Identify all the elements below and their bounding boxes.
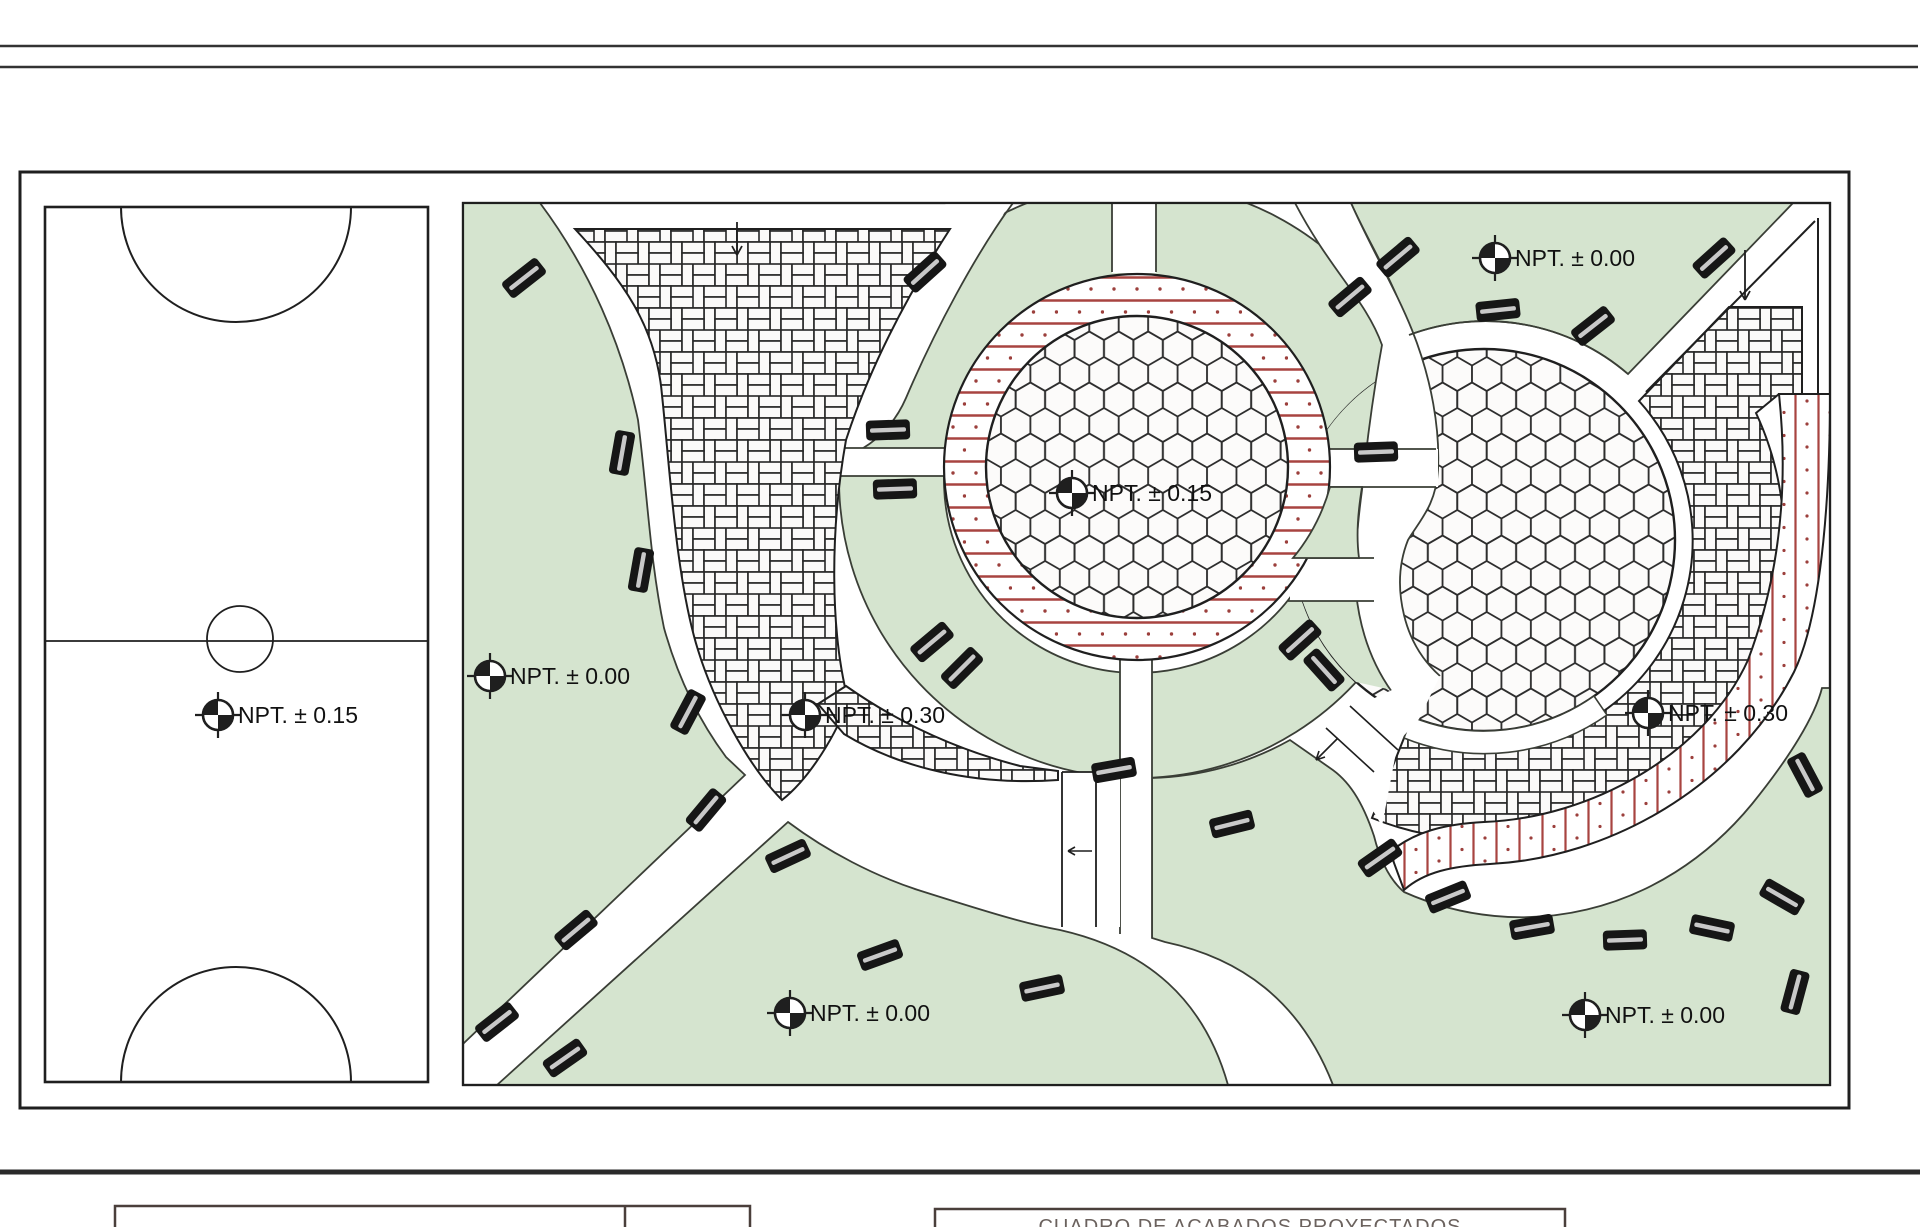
svg-text:NPT. ± 0.15: NPT. ± 0.15 — [1092, 480, 1212, 506]
svg-text:NPT. ± 0.30: NPT. ± 0.30 — [1668, 700, 1788, 726]
svg-text:CUADRO DE ACABADOS PROYECTADOS: CUADRO DE ACABADOS PROYECTADOS — [1038, 1216, 1461, 1227]
svg-text:NPT. ± 0.30: NPT. ± 0.30 — [825, 702, 945, 728]
svg-text:NPT. ± 0.00: NPT. ± 0.00 — [1515, 245, 1635, 271]
svg-text:NPT. ± 0.15: NPT. ± 0.15 — [238, 702, 358, 728]
svg-text:NPT. ± 0.00: NPT. ± 0.00 — [810, 1000, 930, 1026]
svg-text:NPT. ± 0.00: NPT. ± 0.00 — [510, 663, 630, 689]
svg-text:NPT. ± 0.00: NPT. ± 0.00 — [1605, 1002, 1725, 1028]
